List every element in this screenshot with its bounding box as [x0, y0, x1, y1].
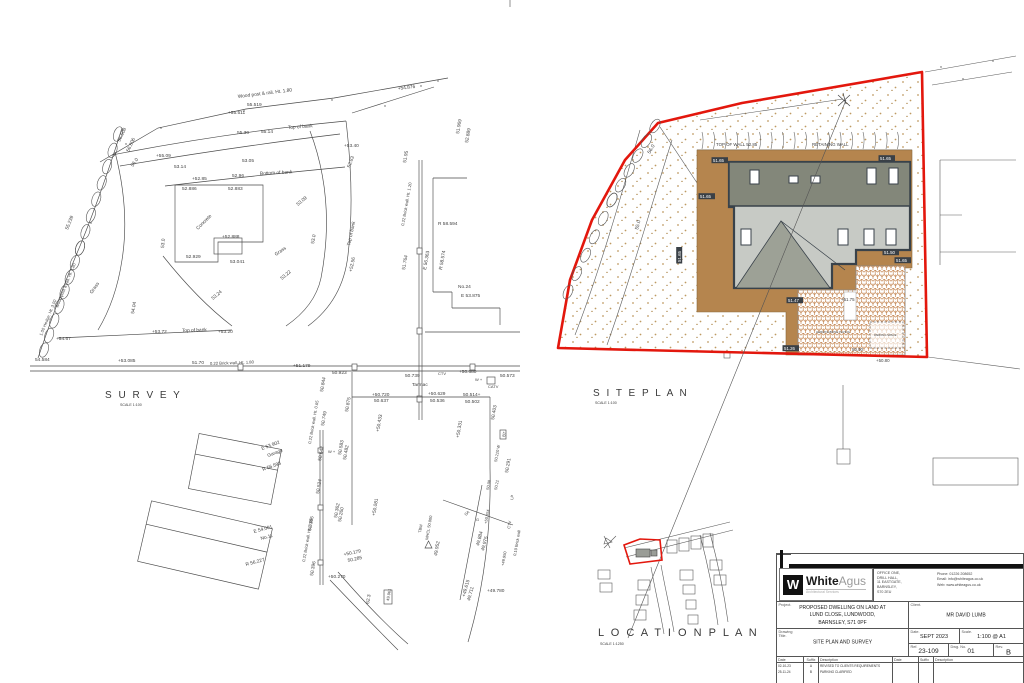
- survey-label: Grass: [89, 281, 102, 295]
- survey-label: 50.524: [315, 479, 324, 495]
- survey-label: Wood post & rail. Ht. 1.80: [54, 262, 77, 309]
- survey-label: E 54.001: [253, 524, 273, 535]
- survey-label: Grass: [274, 245, 288, 258]
- survey-label: 50.573: [500, 373, 515, 379]
- survey-label: +52.888: [222, 234, 240, 240]
- survey-label: +50.081: [371, 498, 380, 517]
- survey-label: +50.433: [375, 414, 384, 433]
- survey-label: 52.96: [232, 173, 244, 179]
- survey-label: R 58.574: [438, 250, 447, 271]
- survey-label: 51.95: [402, 150, 410, 163]
- survey-label: Tarmac: [412, 382, 428, 388]
- survey-label: 50.637: [374, 398, 389, 404]
- survey-label: +50.331: [455, 420, 464, 439]
- date-cell: Date. SEPT 2023: [909, 629, 960, 643]
- site-label: PARKING SPACE: [874, 333, 897, 337]
- survey-label: +53.085: [118, 358, 136, 364]
- survey-label: +53.72: [152, 329, 167, 335]
- survey-label: 0.10 Brick wall: [512, 530, 521, 556]
- survey-label: No.24: [458, 284, 471, 290]
- survey-label: 52.83: [346, 155, 356, 169]
- office-address: OFFICE ONE, DRILL HALL, 11 EASTGATE, BAR…: [873, 568, 931, 601]
- survey-label: x: [60, 294, 62, 299]
- rev-col-date-2: Date: [893, 657, 918, 663]
- survey-label: 56.0: [130, 157, 140, 168]
- project-cell: Project. PROPOSED DWELLING ON LAND AT LU…: [777, 602, 909, 629]
- survey-label: Top of bank: [346, 220, 357, 246]
- site-label: x: [992, 58, 994, 63]
- survey-label: Bottom of bank: [260, 169, 293, 177]
- survey-label: 50.08: [485, 479, 492, 490]
- survey-scale-note: SCALE 1:100: [120, 403, 142, 407]
- rev-row-description: PARKING CLARIFIED: [819, 669, 892, 675]
- survey-label: 0.22 Brick wall. Ht. 0.65: [301, 517, 314, 562]
- survey-label: Top of bank: [182, 327, 208, 334]
- survey-label: 0.22 Brick wall. Ht. 0.65: [307, 399, 320, 444]
- drawing-title-cell: Drawing Title. SITE PLAN AND SURVEY: [777, 629, 909, 657]
- survey-label: TBM: [417, 524, 423, 533]
- survey-label: 53.041: [230, 259, 245, 265]
- survey-label: 51.764: [401, 255, 410, 271]
- site-level-label: 51.65: [700, 194, 712, 199]
- survey-label: 50.875: [344, 397, 353, 413]
- survey-label: MHCL 50.000: [424, 514, 433, 540]
- survey-label: G: [476, 517, 479, 522]
- scale-value: 1:100 @ A1: [960, 633, 1023, 641]
- client-cell: Client. MR DAVID LUMB: [909, 602, 1023, 629]
- site-plan-title: S I T E P L A N: [593, 388, 689, 399]
- survey-label: +53.40: [344, 143, 359, 149]
- survey-label: 50.514+: [463, 392, 481, 398]
- survey-label: 53.24: [210, 289, 223, 302]
- site-level-label: 51.50: [884, 250, 896, 255]
- survey-label: 55.14: [261, 129, 273, 135]
- survey-label: +49.950: [500, 550, 508, 566]
- survey-label: +50.270: [328, 574, 346, 580]
- survey-label: 50.21: [493, 479, 500, 490]
- survey-label: 53.22: [279, 269, 292, 282]
- survey-label: Wood post & rail. Ht. 1.80: [238, 87, 293, 100]
- survey-label: E 56.363: [422, 250, 431, 270]
- site-level-label: 51.65: [896, 258, 908, 263]
- survey-label: LP: [509, 494, 515, 500]
- survey-label: 49.952: [433, 541, 442, 557]
- survey-label: 54.04: [130, 301, 138, 314]
- site-level-label: 51.47: [788, 298, 800, 303]
- survey-title: S U R V E Y: [105, 390, 182, 401]
- survey-label: 53.14: [174, 164, 186, 170]
- location-plan: [598, 522, 733, 634]
- rev-col-description-2: Description: [934, 657, 1023, 663]
- survey-label: W +: [475, 377, 483, 382]
- survey-label: 51.70: [192, 360, 204, 366]
- survey-label: +55.09: [156, 153, 171, 159]
- survey-label: 52.886: [182, 186, 197, 192]
- client-value: MR DAVID LUMB: [909, 612, 1023, 620]
- survey-label: 0.22 Brick wall. Ht. 1.20: [400, 181, 413, 226]
- drawing-title-value: SITE PLAN AND SURVEY: [777, 639, 908, 647]
- location-plan-title: L O C A T I O N P L A N: [598, 627, 759, 639]
- location-plan-scale-note: SCALE 1:1250: [600, 642, 624, 646]
- site-level-label: 51.65: [713, 158, 725, 163]
- site-label: 50.90: [852, 347, 864, 352]
- survey-label: +54.876: [398, 84, 416, 92]
- survey-label: 50.749: [320, 411, 329, 427]
- survey-label: 50.923: [332, 370, 347, 376]
- drawing-sheet: Wood post & rail. Ht. 1.80+55.51155.519+…: [0, 0, 1024, 683]
- scale-cell: Scale. 1:100 @ A1: [960, 629, 1023, 643]
- survey-label: CATV: [488, 384, 499, 389]
- site-level-label: 51.26: [784, 346, 796, 351]
- survey-label: 55.519: [247, 102, 262, 108]
- survey-label: 53.09: [295, 195, 308, 208]
- survey-label: 53.0: [310, 234, 318, 245]
- survey-label: Concrete: [195, 213, 213, 231]
- survey-label: 0.22 Brick wall. Ht. 1.80: [210, 359, 255, 366]
- survey-label: 50.210 W: [493, 444, 501, 462]
- logo-word-agus: Agus: [839, 574, 866, 588]
- survey-label: +50.720: [372, 392, 390, 398]
- survey-label: 50.844: [319, 377, 328, 393]
- survey-label: x: [331, 97, 333, 102]
- title-block: W WhiteAgus Architectural Services OFFIC…: [776, 553, 1024, 683]
- survey-label: Top of bank: [288, 123, 314, 131]
- survey-label: x: [160, 125, 162, 130]
- survey-label: 52.883: [228, 186, 243, 192]
- site-label: +51.75: [841, 297, 855, 302]
- survey-label: 51.969: [455, 119, 464, 135]
- survey-label: 50.536: [430, 398, 445, 404]
- survey-label: +50.680: [459, 369, 477, 375]
- client-label: Client.: [911, 603, 922, 607]
- survey-label: SA: [463, 509, 471, 517]
- north-symbol: [604, 536, 616, 548]
- survey-label: W +: [328, 449, 336, 454]
- survey-label: x: [243, 108, 245, 113]
- date-value: SEPT 2023: [909, 633, 959, 641]
- survey-label: R 58.594: [438, 221, 458, 227]
- survey-label: CTV: [438, 371, 446, 376]
- survey-label: CTV: [506, 520, 512, 529]
- drawing-title-label: Drawing Title.: [779, 630, 793, 638]
- site-label: RETAINING WALL: [812, 142, 849, 147]
- project-value: PROPOSED DWELLING ON LAND AT LUND CLOSE,…: [777, 604, 908, 627]
- survey-label: 50.291: [504, 458, 513, 474]
- survey-label: +51.179: [293, 363, 311, 369]
- survey-label: E 53.875: [461, 293, 481, 299]
- site-label: +50.80: [876, 358, 890, 363]
- survey-label: 52.929: [186, 254, 201, 260]
- survey-label: +54.67: [56, 336, 71, 342]
- rev-col-suffix-2: Suffix: [919, 657, 933, 663]
- survey-label: x: [90, 220, 92, 225]
- survey-label: 50.396: [309, 561, 318, 577]
- site-label: x: [962, 76, 964, 81]
- rev-row-suffix: B: [804, 669, 818, 675]
- title-block-corner-tick: [780, 550, 783, 568]
- logo-word-white: White: [806, 574, 839, 588]
- survey-label: 55.239: [64, 215, 75, 231]
- revision-table: Date 02-10-23 25-11-24 Suffix A B Descri…: [777, 656, 1023, 683]
- survey-label: No.11: [260, 533, 274, 542]
- survey-label: +52.85: [192, 176, 207, 182]
- site-label: TOP OF WALL 52.85: [716, 142, 758, 147]
- survey-label: 50.502: [465, 399, 480, 405]
- survey-label: +50.629: [428, 391, 446, 397]
- survey-label: 1.00 Hedge. Ht. 3.00: [38, 298, 57, 336]
- survey-label: x: [125, 141, 127, 146]
- site-level-label: 51.65: [677, 250, 682, 262]
- survey-label: 54.584: [35, 357, 50, 363]
- site-level-label: 51.65: [880, 156, 892, 161]
- survey-label: R 56.227: [245, 557, 266, 568]
- survey-label: 50.403: [490, 405, 499, 421]
- survey-label: 53.0: [160, 238, 167, 248]
- contact-details: Phone: 01226 208652 Email: info@whiteagu…: [931, 568, 1023, 601]
- company-logo: W WhiteAgus Architectural Services: [779, 568, 873, 601]
- survey-label: +53.20: [218, 329, 233, 335]
- survey-label: R 56.593: [262, 460, 283, 472]
- survey-label: x: [437, 78, 439, 83]
- survey-label: 50.739: [405, 373, 420, 379]
- survey-label: 53.05: [242, 158, 254, 164]
- survey-label: +52.56: [348, 256, 357, 272]
- site-plan-scale-note: SCALE 1:100: [595, 401, 617, 405]
- survey-label: 52.889: [464, 128, 473, 144]
- survey-label: x: [420, 83, 422, 88]
- survey-linework: [30, 78, 520, 650]
- site-label: x: [940, 64, 942, 69]
- rev-row-date: 25-11-24: [777, 669, 803, 675]
- survey-label: 62.3: [365, 594, 373, 605]
- survey-label: x: [384, 103, 386, 108]
- logo-tagline: Architectural Services: [806, 589, 866, 595]
- site-label: HERRINGBONE PAVING: [816, 330, 851, 334]
- logo-emblem-icon: W: [783, 575, 803, 595]
- survey-label: +49.780: [487, 588, 505, 594]
- survey-label: 55.30: [237, 130, 249, 136]
